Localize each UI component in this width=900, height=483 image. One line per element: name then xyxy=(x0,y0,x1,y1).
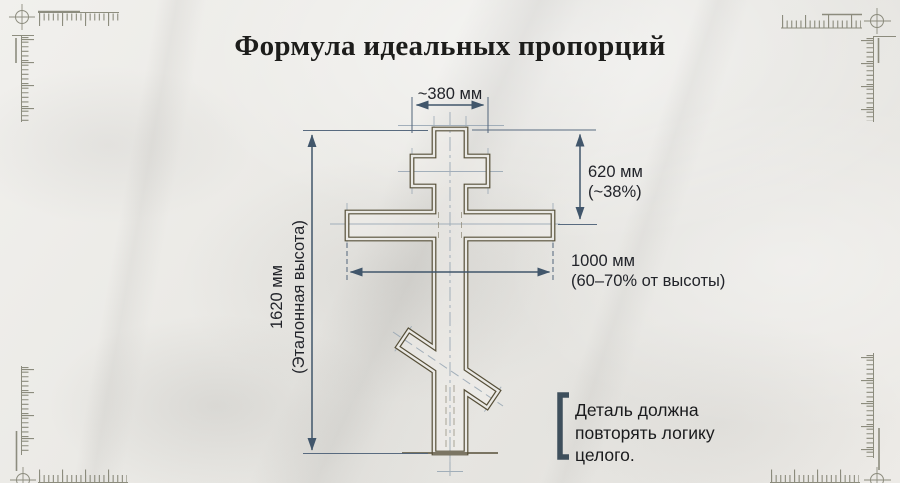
callout-bracket-icon xyxy=(554,392,572,460)
dim-label-upper-section: 620 мм (~38%) xyxy=(588,162,643,202)
dim-value: 1000 мм xyxy=(571,251,725,271)
callout-line: повторять логику xyxy=(575,422,715,445)
page-title: Формула идеальных пропорций xyxy=(0,30,900,63)
dim-label-top-width: ~380 мм xyxy=(370,84,530,104)
dim-note: (~38%) xyxy=(588,182,643,202)
dim-value: 620 мм xyxy=(588,162,643,182)
diagram-drawing xyxy=(0,0,900,483)
dim-label-crossbar: 1000 мм (60–70% от высоты) xyxy=(571,251,725,291)
dim-value: 1620 мм xyxy=(266,187,288,407)
dim-label-total-height: 1620 мм (Эталонная высота) xyxy=(266,187,310,407)
callout-line: Деталь должна xyxy=(575,399,715,422)
dim-note: (60–70% от высоты) xyxy=(571,271,725,291)
infographic-canvas: Формула идеальных пропорций ~380 мм 620 … xyxy=(0,0,900,483)
callout-note: Деталь должна повторять логику целого. xyxy=(575,399,715,467)
dim-note: (Эталонная высота) xyxy=(288,187,310,407)
callout-line: целого. xyxy=(575,444,715,467)
